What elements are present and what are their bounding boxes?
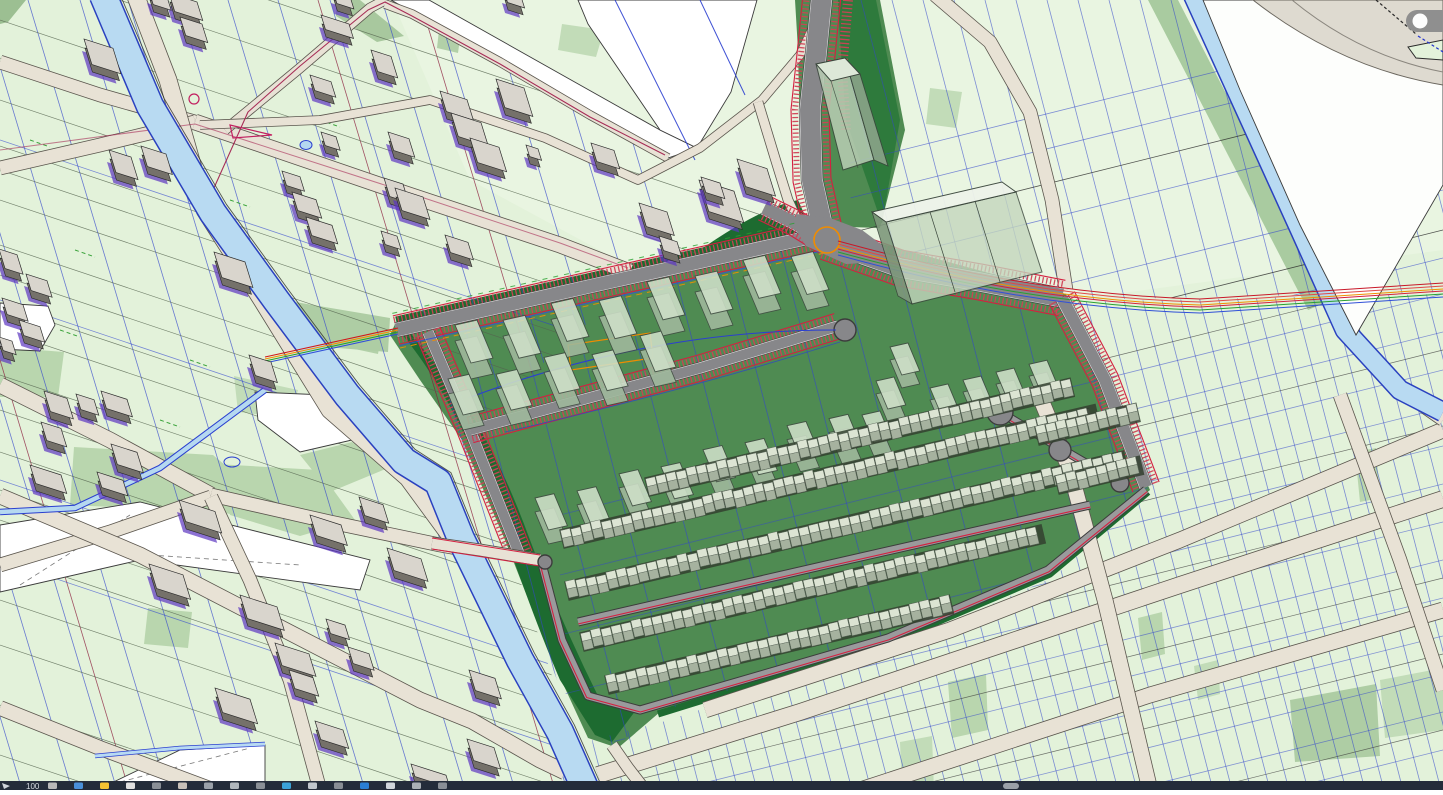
- svg-text:100: 100: [26, 782, 40, 790]
